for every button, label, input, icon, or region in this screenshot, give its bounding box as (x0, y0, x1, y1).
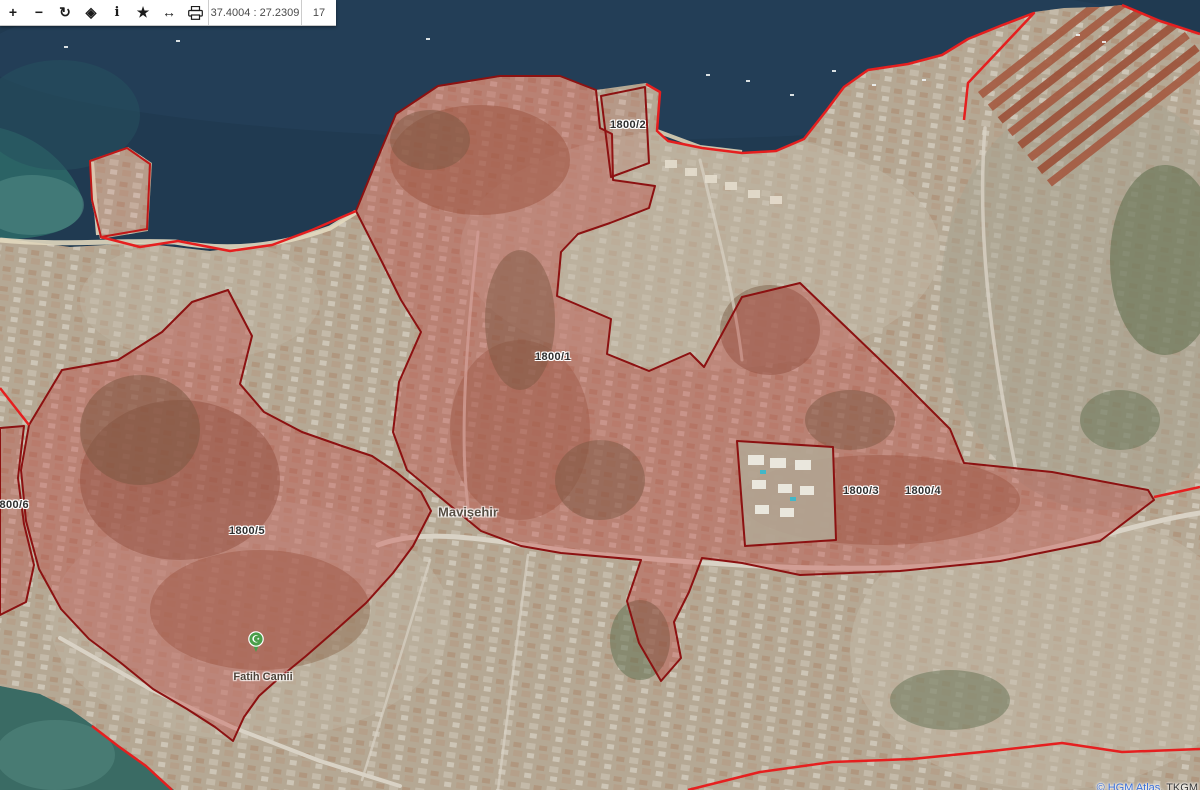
place-label-mavisehir: Mavişehir (438, 505, 498, 520)
zoom-level-indicator: 17 (301, 0, 336, 25)
parcel-label-1800-4: 1800/4 (905, 485, 941, 497)
attribution-link[interactable]: © HGM Atlas (1097, 782, 1161, 790)
map-toolbar: + − ↻ ◈ i ★ ↔ 37.4004 : 27.2309 17 (0, 0, 336, 26)
refresh-button[interactable]: ↻ (52, 0, 78, 25)
mosque-marker[interactable]: ☪ (247, 631, 265, 658)
parcel-label-1800-6: 1800/6 (0, 499, 29, 511)
zoom-in-button[interactable]: + (0, 0, 26, 25)
mosque-pin-icon: ☪ (247, 631, 265, 653)
print-icon (188, 6, 203, 20)
svg-text:☪: ☪ (252, 635, 261, 646)
attribution-text: , TKGM (1160, 782, 1198, 790)
parcel-label-1800-2: 1800/2 (610, 119, 646, 131)
info-button[interactable]: i (104, 0, 130, 25)
satellite-map[interactable] (0, 0, 1200, 790)
place-label-fatih-camii: Fatih Camii (233, 671, 292, 683)
zoom-out-button[interactable]: − (26, 0, 52, 25)
parcel-label-1800-5: 1800/5 (229, 525, 265, 537)
center-button[interactable]: ◈ (78, 0, 104, 25)
parcel-label-1800-3: 1800/3 (843, 485, 879, 497)
cursor-coordinates: 37.4004 : 27.2309 (208, 0, 301, 25)
favorites-button[interactable]: ★ (130, 0, 156, 25)
print-button[interactable] (182, 0, 208, 25)
map-application: 1800/1 1800/2 1800/3 1800/4 1800/5 1800/… (0, 0, 1200, 790)
measure-button[interactable]: ↔ (156, 0, 182, 25)
parcel-label-1800-1: 1800/1 (535, 351, 571, 363)
peninsula-lot-outline (90, 148, 150, 237)
map-attribution: © HGM Atlas, TKGM (1097, 782, 1198, 790)
